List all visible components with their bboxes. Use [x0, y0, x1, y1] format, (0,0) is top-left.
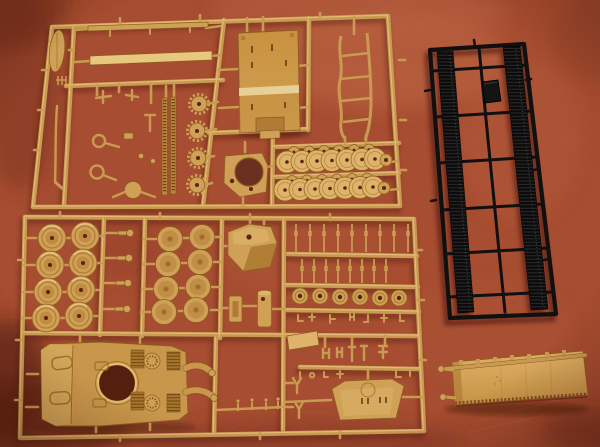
vignette — [0, 0, 600, 447]
photo: Photo of model kit contents: two large s… — [0, 0, 600, 447]
photo-canvas — [0, 0, 600, 447]
